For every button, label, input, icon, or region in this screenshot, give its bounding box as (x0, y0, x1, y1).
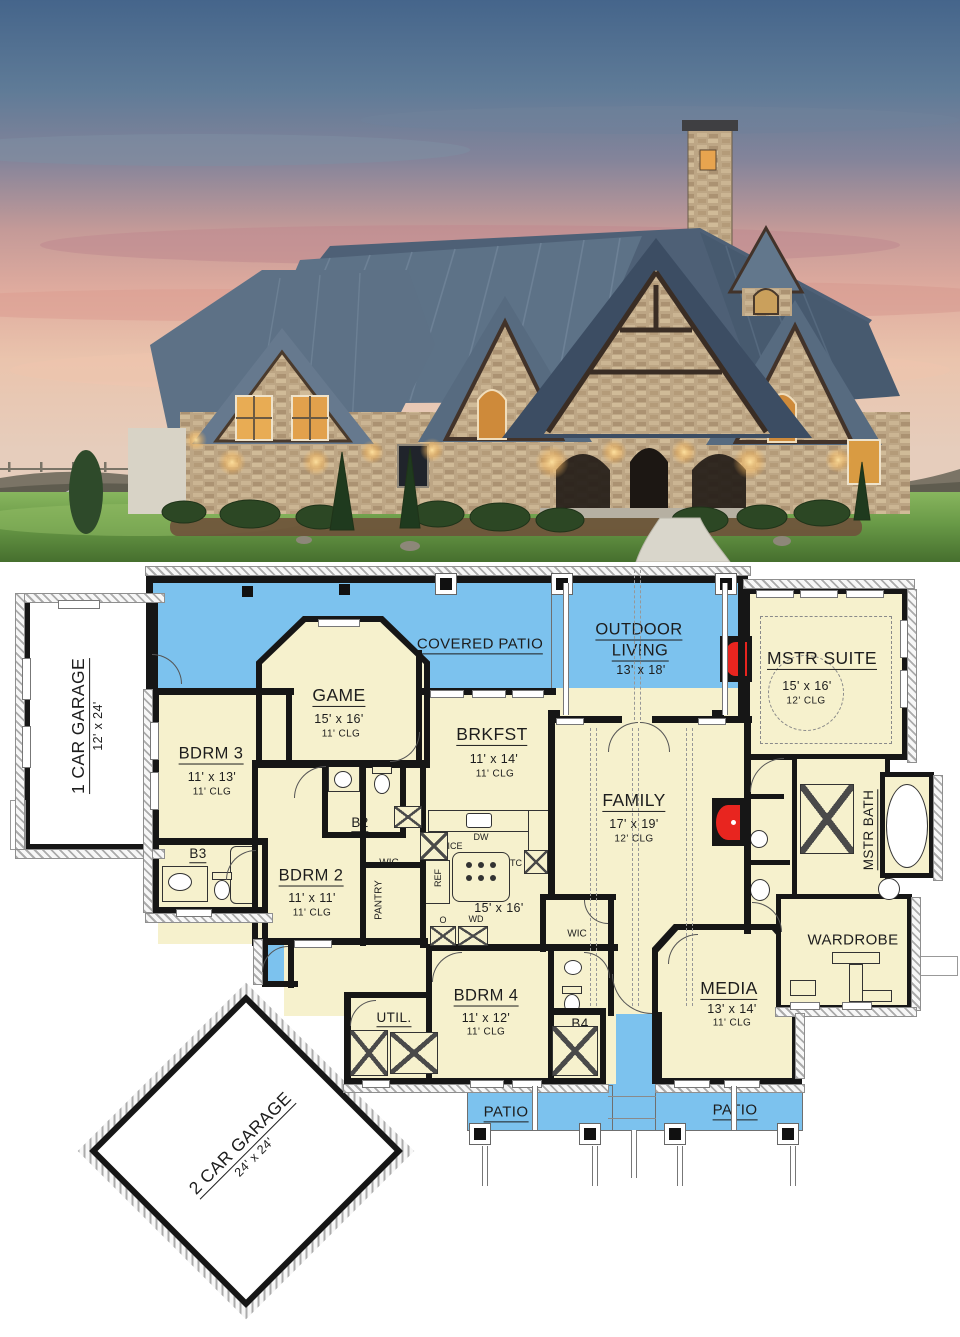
post-line (677, 1146, 683, 1186)
post-line (482, 1146, 488, 1186)
wall-segment (744, 716, 751, 934)
ceiling-beam-line (686, 728, 693, 1006)
window-icon (900, 670, 908, 708)
wall-segment (152, 838, 268, 845)
burner-dot (466, 862, 472, 868)
toilet-icon (750, 879, 770, 901)
label-brkfst: BRKFST (456, 724, 527, 744)
label-bdrm3-clg: 11' CLG (193, 786, 231, 798)
closet-x-icon (524, 850, 548, 874)
exterior-wall-hatch (912, 898, 920, 1010)
closet-x-icon (552, 1026, 598, 1076)
label-wic-bdrm4: WIC (567, 928, 586, 940)
label-oven: O (439, 915, 446, 925)
wall-segment (322, 832, 406, 838)
window-icon (512, 690, 544, 698)
porch-column-icon (665, 1124, 685, 1144)
label-bdrm4: BDRM 4 (454, 987, 519, 1006)
wall-segment (262, 838, 268, 914)
sink-icon (878, 878, 900, 900)
label-game: GAME (312, 685, 365, 705)
burner-dot (490, 875, 496, 881)
label-1-car-garage: 1 CAR GARAGE 12' x 24' (68, 658, 108, 794)
window-icon (698, 718, 726, 725)
window-icon (800, 590, 838, 598)
window-icon (846, 590, 884, 598)
wall-segment (656, 1012, 662, 1084)
window-icon (294, 940, 332, 948)
label-b3: B3 (189, 846, 206, 862)
wardrobe-island (832, 952, 880, 964)
floor-plan: COVERED PATIO OUTDOOR LIVING 13' x 18' M… (0, 562, 960, 1337)
wall-segment (540, 894, 546, 952)
exterior-wall-hatch (744, 580, 914, 588)
label-mstr-bath: MSTR BATH (861, 790, 877, 871)
porch-column-icon (436, 574, 456, 594)
fireplace-dot (731, 820, 736, 825)
window-icon (674, 1080, 710, 1088)
closet-x-icon (390, 1032, 438, 1074)
closet-x-icon (800, 784, 854, 854)
window-icon (22, 658, 31, 700)
post-line (722, 583, 728, 715)
post-line (532, 1086, 538, 1130)
label-bdrm3: BDRM 3 (179, 745, 244, 764)
label-bdrm2-dim: 11' x 11' (288, 891, 336, 905)
exterior-wall-hatch (908, 590, 916, 762)
window-icon (556, 718, 584, 725)
toilet-icon (372, 766, 392, 774)
burner-dot (466, 875, 472, 881)
window-icon (150, 772, 159, 810)
sink-icon (334, 771, 352, 788)
wall-segment (608, 894, 614, 952)
post-line (592, 1146, 598, 1186)
wall-segment (360, 862, 426, 868)
window-icon (472, 690, 506, 698)
closet-x-icon (458, 926, 488, 946)
window-icon (900, 620, 908, 658)
post-line (631, 1130, 637, 1178)
fireplace-firebox (716, 805, 740, 840)
window-icon (842, 1002, 872, 1010)
toilet-icon (562, 986, 582, 994)
window-icon (22, 726, 31, 768)
closet-x-icon (420, 832, 448, 860)
closet-x-icon (430, 926, 456, 946)
sink-icon (564, 960, 582, 975)
label-ice: ICE (447, 841, 462, 851)
label-pantry: PANTRY (373, 880, 385, 920)
ceiling-beam-line (632, 728, 639, 1006)
label-dw: DW (474, 832, 489, 842)
label-outdoor-living-dim: 13' x 18' (616, 663, 665, 677)
bathtub-icon (886, 784, 928, 868)
post-line (731, 1086, 737, 1130)
window-icon (724, 1080, 760, 1088)
porch-column-icon (470, 1124, 490, 1144)
label-game-clg: 11' CLG (322, 728, 360, 740)
window-icon (318, 619, 360, 627)
label-bdrm3-dim: 11' x 13' (188, 770, 236, 784)
closet-x-icon (394, 806, 422, 828)
burner-dot (490, 862, 496, 868)
wall-segment (548, 716, 555, 900)
burner-dot (478, 875, 484, 881)
wall-segment (748, 860, 790, 865)
wall-segment (416, 650, 422, 766)
wall-segment (738, 576, 745, 722)
ceiling-beam-line (634, 570, 641, 720)
wardrobe-island (849, 964, 863, 1002)
label-media-dim: 13' x 14' (707, 1002, 756, 1016)
exterior-stoop (914, 956, 958, 976)
step-line (608, 1118, 656, 1119)
porch-column-icon (552, 574, 572, 594)
burner-dot (478, 862, 484, 868)
label-tc: TC (510, 858, 522, 868)
post-line (790, 1146, 796, 1186)
exterior-wall-hatch (934, 776, 942, 880)
label-patio-left: PATIO (484, 1103, 529, 1120)
toilet-icon (214, 880, 230, 900)
bench (790, 980, 816, 996)
kitchen-sink (466, 813, 492, 828)
step-line (608, 1096, 656, 1097)
label-covered-patio: COVERED PATIO (417, 635, 543, 652)
wall-segment (344, 992, 432, 998)
post-line (563, 583, 569, 715)
label-brkfst-dim: 11' x 14' (470, 752, 518, 766)
label-mstr-suite: MSTR SUITE (767, 648, 877, 668)
closet-x-icon (350, 1030, 388, 1076)
window-icon (470, 1080, 504, 1088)
window-icon (790, 1002, 820, 1010)
front-door (630, 448, 668, 512)
porch-column-icon (580, 1124, 600, 1144)
label-mstr-suite-dim: 15' x 16' (782, 679, 831, 693)
house-photo (0, 0, 960, 562)
label-mstr-suite-clg: 12' CLG (786, 695, 825, 707)
label-bdrm2-clg: 11' CLG (293, 907, 331, 919)
exterior-wall-hatch (254, 940, 262, 984)
wall-segment (748, 794, 784, 799)
window-icon (362, 1080, 390, 1088)
toilet-icon (374, 774, 390, 794)
window-icon (176, 909, 212, 917)
window-icon (430, 690, 464, 698)
wall-segment (152, 688, 294, 695)
label-bdrm2: BDRM 2 (279, 867, 344, 886)
exterior-wall-hatch (796, 1014, 804, 1078)
sink-icon (168, 873, 192, 891)
label-util: UTIL. (376, 1010, 411, 1026)
window-icon (150, 722, 159, 760)
label-bdrm4-dim: 11' x 12' (462, 1011, 510, 1025)
label-brkfst-clg: 11' CLG (476, 768, 514, 780)
page: COVERED PATIO OUTDOOR LIVING 13' x 18' M… (0, 0, 960, 1337)
exterior-wall-hatch (16, 850, 164, 858)
label-media: MEDIA (700, 978, 757, 998)
wall-segment (252, 938, 428, 945)
window-icon (58, 600, 100, 609)
column-icon (339, 584, 350, 595)
window-icon (756, 590, 794, 598)
label-ref: REF (433, 869, 443, 887)
label-media-clg: 11' CLG (713, 1017, 751, 1029)
label-wardrobe: WARDROBE (808, 931, 899, 948)
label-game-dim: 15' x 16' (314, 712, 363, 726)
wall-segment (360, 760, 366, 946)
porch-column-icon (778, 1124, 798, 1144)
label-wd: WD (469, 914, 484, 924)
column-icon (242, 586, 253, 597)
label-bdrm4-clg: 11' CLG (467, 1026, 505, 1038)
bench (862, 990, 892, 1002)
wall-segment (286, 688, 292, 764)
wall-segment (548, 1008, 606, 1015)
sink-icon (750, 830, 768, 848)
wall-segment (600, 1012, 606, 1084)
arched-window (478, 390, 506, 439)
dormer-window (754, 289, 778, 314)
